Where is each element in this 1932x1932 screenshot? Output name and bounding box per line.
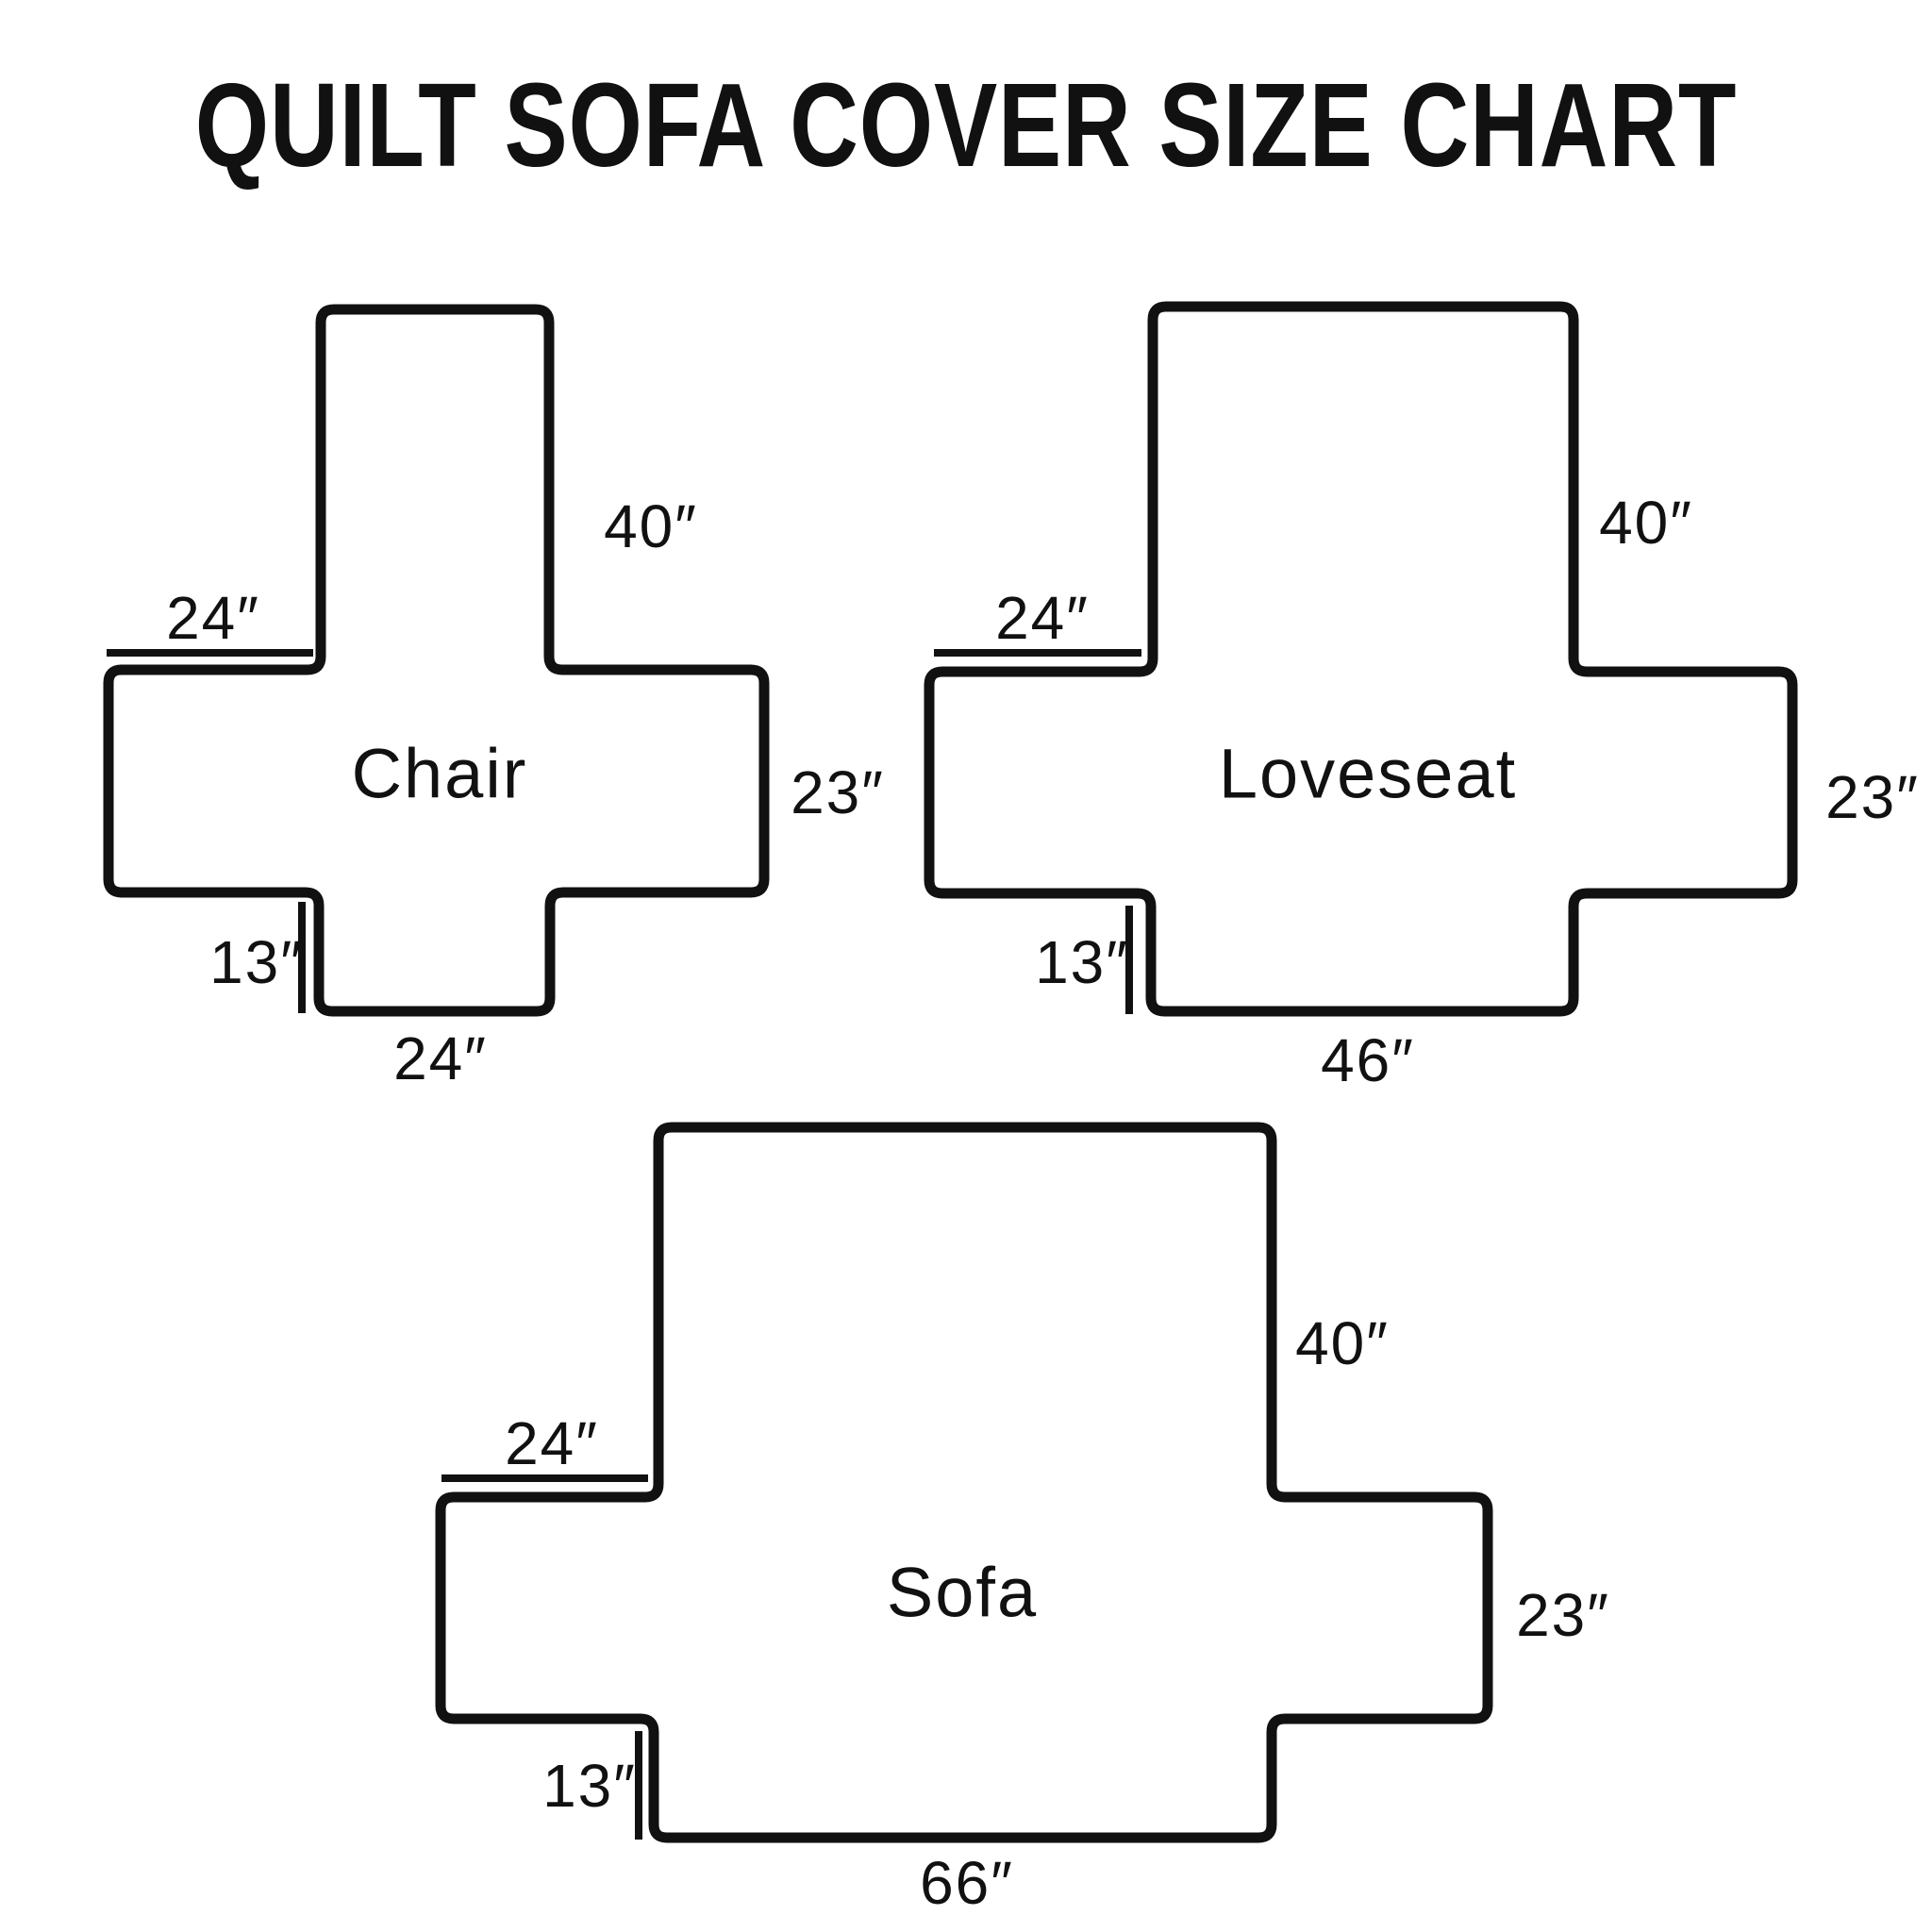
loveseat-cover-outline xyxy=(929,307,1792,1011)
diagram-canvas: 40″ 24″ Chair 23″ 13″ 24″ 40″ 24″ Lovese… xyxy=(0,0,1932,1932)
sofa-arm-top-label: 24″ xyxy=(505,1409,599,1477)
sofa-cover-outline xyxy=(441,1127,1488,1838)
loveseat-skirt-label: 13″ xyxy=(1035,928,1129,996)
quilt-sofa-cover-size-chart: QUILT SOFA COVER SIZE CHART 40″ 24″ Chai… xyxy=(0,0,1932,1932)
loveseat-name-label: Loveseat xyxy=(1219,735,1517,813)
chair-skirt-label: 13″ xyxy=(209,928,304,996)
chair-cover-outline xyxy=(108,309,764,1011)
sofa-skirt-label: 13″ xyxy=(542,1752,637,1820)
sofa-bottom-width-label: 66″ xyxy=(920,1849,1014,1917)
chair-arm-top-label: 24″ xyxy=(166,584,260,652)
chair-arm-side-label: 23″ xyxy=(791,758,885,826)
chair-name-label: Chair xyxy=(352,735,528,813)
sofa-arm-side-label: 23″ xyxy=(1516,1581,1610,1649)
sofa-name-label: Sofa xyxy=(887,1554,1038,1632)
loveseat-bottom-width-label: 46″ xyxy=(1321,1026,1415,1094)
loveseat-arm-top-label: 24″ xyxy=(995,584,1090,652)
loveseat-back-height-label: 40″ xyxy=(1599,489,1693,557)
chair-back-height-label: 40″ xyxy=(604,492,698,560)
chair-bottom-width-label: 24″ xyxy=(393,1024,488,1092)
sofa-back-height-label: 40″ xyxy=(1295,1309,1390,1377)
loveseat-arm-side-label: 23″ xyxy=(1825,763,1920,831)
